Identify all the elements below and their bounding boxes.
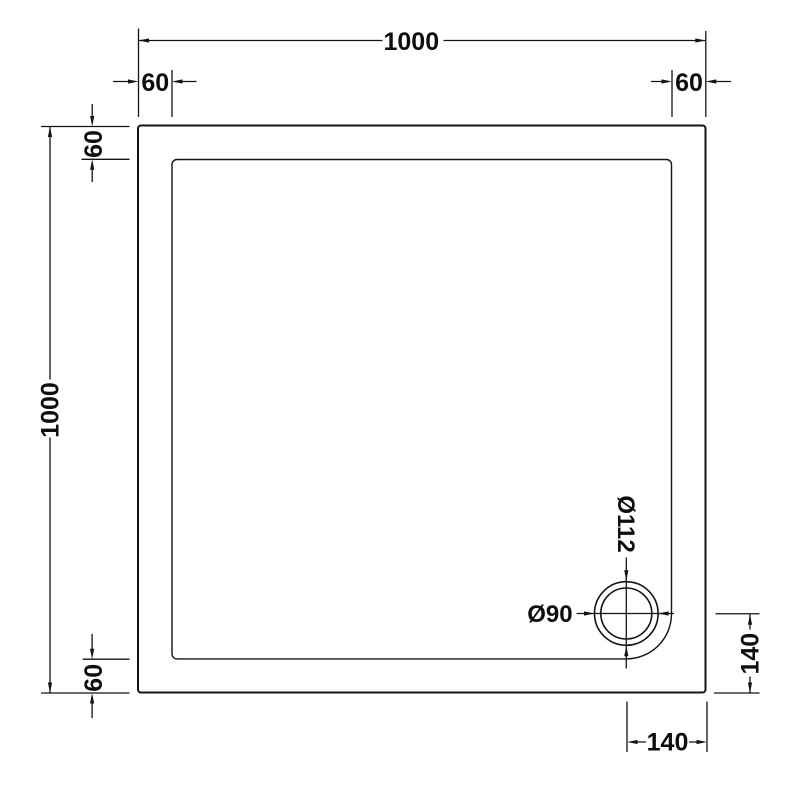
svg-text:Ø112: Ø112 bbox=[612, 495, 639, 552]
svg-text:60: 60 bbox=[141, 69, 169, 97]
svg-text:60: 60 bbox=[80, 130, 108, 158]
svg-text:Ø90: Ø90 bbox=[527, 601, 572, 628]
svg-text:140: 140 bbox=[737, 633, 765, 675]
svg-text:1000: 1000 bbox=[37, 382, 65, 438]
svg-text:60: 60 bbox=[80, 664, 108, 692]
svg-text:60: 60 bbox=[675, 69, 703, 97]
svg-text:140: 140 bbox=[647, 729, 689, 757]
svg-text:1000: 1000 bbox=[383, 28, 439, 56]
